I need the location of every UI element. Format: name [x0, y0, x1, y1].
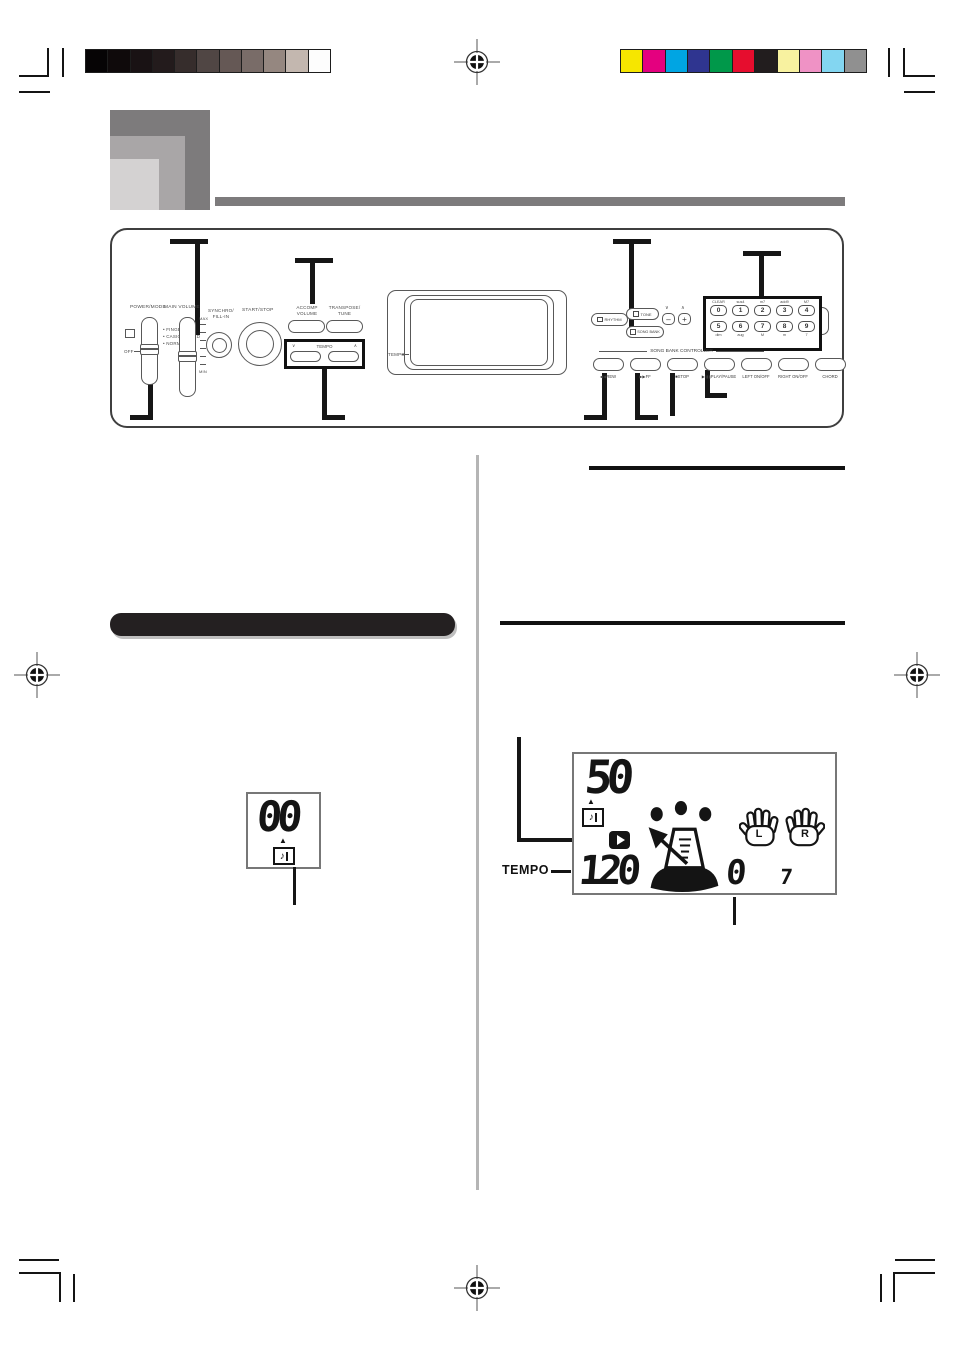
color-swatch: [710, 50, 731, 72]
key-0: 0: [710, 305, 727, 316]
callout-tempo: [322, 369, 327, 420]
gray-swatch: [131, 50, 152, 72]
left-hand-letter: L: [756, 828, 763, 840]
color-swatch: [800, 50, 821, 72]
crop-mark-tl: [19, 75, 49, 77]
crop-mark-bl: [59, 1272, 61, 1302]
tempo-up-button: [328, 351, 359, 362]
key-digit: 4: [805, 307, 809, 314]
power-mode-knob: [140, 344, 159, 355]
transpose-label-line2: TUNE: [326, 311, 363, 317]
song-bank-label: SONG BANK: [637, 330, 660, 334]
callout-rew: [584, 415, 607, 420]
small-display-number: 00: [255, 798, 299, 835]
cursor-triangle-icon: ▲: [279, 837, 287, 845]
small-display-figure: 00 ▲ ♪: [246, 792, 321, 869]
song-bank-note-icon: ♪: [273, 847, 295, 865]
rhythm-label: RHYTHM: [604, 317, 621, 322]
gray-swatch: [86, 50, 107, 72]
main-figure-callout-play: [517, 737, 521, 842]
ff-button: [630, 358, 661, 371]
accomp-volume-label: ACCOMP VOLUME: [289, 305, 325, 316]
keypad-side-bracket: [822, 307, 829, 335]
key-8: 8: [776, 321, 793, 332]
transpose-tune-label: TRANSPOSE/ TUNE: [326, 305, 363, 316]
key-digit: 1: [739, 307, 743, 314]
right-hand-icon: R: [785, 805, 825, 849]
registration-mark-icon: [894, 652, 940, 698]
main-display-figure: 50 ▲ ♪ 120: [572, 752, 837, 895]
color-swatch: [778, 50, 799, 72]
key-6: 6: [732, 321, 749, 332]
crop-mark-tr: [903, 48, 905, 77]
rhythm-button: RHYTHM: [591, 313, 628, 326]
transport-right-onoff: RIGHT ON/OFF: [776, 358, 810, 379]
transport-left-onoff: LEFT ON/OFF: [739, 358, 773, 379]
callout-keypad: [759, 251, 764, 297]
color-swatch: [643, 50, 664, 72]
key-9: 9: [798, 321, 815, 332]
key-5: 5: [710, 321, 727, 332]
key-4: 4: [798, 305, 815, 316]
keypad-label: M: [754, 333, 771, 337]
key-digit: 8: [783, 323, 787, 330]
registration-mark-icon: [14, 652, 60, 698]
keypad-label: 7: [798, 333, 815, 337]
color-swatch: [688, 50, 709, 72]
synchro-label-line1: SYNCHRO/: [208, 308, 234, 314]
keypad-label: dim: [710, 333, 727, 337]
synchro-fill-in-label: SYNCHRO/ FILL-IN: [208, 308, 234, 319]
tempo-label: TEMPO: [316, 344, 332, 349]
metronome-icon: [646, 801, 724, 894]
key-7: 7: [754, 321, 771, 332]
tempo-label-dash: [551, 870, 571, 873]
crop-mark-tr: [904, 91, 935, 93]
grayscale-calibration-bar: [85, 49, 331, 73]
crop-mark-tl: [47, 48, 49, 77]
minus-label: –: [666, 315, 670, 324]
crop-mark-bl: [73, 1274, 75, 1302]
title-rule-left: [599, 351, 647, 352]
manual-page: POWER/MODE • FINGERED • CASIO CHORD • NO…: [0, 0, 954, 1350]
cursor-triangle-icon: ▲: [587, 798, 595, 806]
color-swatch: [755, 50, 776, 72]
main-volume-label: MAIN VOLUME: [164, 305, 200, 311]
tempo-value-digits: 120: [577, 853, 637, 889]
volume-max-label: MAX: [199, 317, 208, 322]
play-pause-icon: ▶/▮▮: [702, 374, 711, 379]
keypad-label: m7: [754, 300, 771, 304]
key-digit: 3: [783, 307, 787, 314]
lcd-tempo-tick: [402, 354, 409, 355]
color-swatch: [666, 50, 687, 72]
stop-button: [667, 358, 698, 371]
keypad-labels-top: CLEAR sus4 m7 add9 M7: [710, 300, 815, 304]
rhythm-icon: [597, 317, 603, 323]
crop-mark-br: [895, 1259, 935, 1261]
left-onoff-button: [741, 358, 772, 371]
measure-digit: 0: [725, 858, 745, 889]
tone-button: TONE: [626, 308, 659, 320]
minus-button: –: [662, 313, 675, 325]
crop-mark-tr: [905, 75, 935, 77]
plus-button: +: [678, 313, 691, 325]
transpose-tune-button: [326, 320, 363, 333]
column-divider: [476, 455, 479, 1190]
song-bank-button: SONG BANK: [626, 326, 664, 338]
registration-mark-icon: [454, 1265, 500, 1311]
crop-mark-br: [893, 1272, 895, 1302]
value-up-glyph: ∧: [681, 305, 685, 311]
rew-button: [593, 358, 624, 371]
keypad-labels-bottom: dim aug M m 7: [710, 333, 815, 337]
beat-digit: 7: [779, 868, 793, 887]
transport-stop: ■STOP: [665, 358, 699, 379]
key-digit: 9: [805, 323, 809, 330]
callout-accomp-volume: [310, 258, 315, 304]
volume-min-label: MIN: [199, 370, 207, 375]
keypad-label: aug: [732, 333, 749, 337]
transport-row: ◀◀REW ▶▶FF ■STOP ▶/▮▮PLAY/PAUSE LEFT ON/…: [591, 358, 847, 379]
callout-play-pause: [705, 393, 727, 398]
controller-title-text: SONG BANK CONTROLLER: [647, 349, 716, 354]
color-swatch: [845, 50, 866, 72]
crop-mark-tl: [19, 91, 50, 93]
song-bank-note-icon: ♪: [582, 808, 604, 827]
keypad-label: M7: [798, 300, 815, 304]
lcd-screen: [410, 299, 548, 366]
play-pause-label: PLAY/PAUSE: [711, 374, 736, 379]
play-pause-button: [704, 358, 735, 371]
transport-ff: ▶▶FF: [628, 358, 662, 379]
tempo-up-glyph: ∧: [354, 343, 357, 349]
transport-chord: CHORD: [813, 358, 847, 379]
tempo-highlight-box: ∨ TEMPO ∧: [284, 339, 365, 369]
accomp-label-line2: VOLUME: [289, 311, 325, 317]
gray-swatch: [175, 50, 196, 72]
color-swatch: [621, 50, 642, 72]
callout-main-volume: [170, 239, 208, 244]
left-hand-icon: L: [739, 805, 779, 849]
synchro-fill-in-button-inner: [212, 338, 227, 353]
gray-swatch: [108, 50, 129, 72]
power-mode-label: POWER/MODE: [130, 305, 166, 311]
power-off-tick: [134, 351, 140, 352]
gray-swatch: [242, 50, 263, 72]
gray-swatch: [220, 50, 241, 72]
key-digit: 2: [761, 307, 765, 314]
keypad-row-top: 0 1 2 3 4: [710, 305, 815, 316]
power-indicator-icon: [125, 329, 135, 338]
synchro-label-line2: FILL-IN: [208, 314, 234, 320]
registration-mark-icon: [454, 39, 500, 85]
main-volume-knob: [178, 351, 197, 362]
callout-tempo: [322, 415, 345, 420]
tone-icon: [633, 311, 639, 317]
keypad-label: m: [776, 333, 793, 337]
song-bank-icon: [630, 329, 636, 335]
tone-label: TONE: [640, 312, 651, 317]
power-off-label: OFF: [124, 349, 134, 354]
main-volume-slider: [179, 317, 196, 397]
title-rule-right: [716, 351, 764, 352]
key-3: 3: [776, 305, 793, 316]
main-figure-callout-measure: [733, 897, 736, 925]
chord-button: [815, 358, 846, 371]
start-stop-label: START/STOP: [242, 308, 274, 314]
plus-label: +: [682, 315, 687, 324]
start-stop-button-inner: [246, 330, 274, 358]
rew-label: REW: [606, 374, 616, 379]
callout-stop: [670, 373, 675, 416]
gray-swatch: [286, 50, 307, 72]
number-keypad: CLEAR sus4 m7 add9 M7 0 1 2 3 4 5 6 7 8 …: [703, 296, 822, 351]
console-diagram: POWER/MODE • FINGERED • CASIO CHORD • NO…: [110, 228, 844, 428]
play-indicator-icon: [609, 831, 630, 849]
transpose-label-line1: TRANSPOSE/: [326, 305, 363, 311]
chord-label: CHORD: [822, 374, 837, 379]
power-mode-slider: [141, 317, 158, 385]
controller-title: SONG BANK CONTROLLER: [599, 349, 764, 354]
song-number-digits: 50: [583, 757, 630, 797]
value-down-glyph: ∨: [665, 305, 669, 311]
tempo-down-glyph: ∨: [292, 343, 295, 349]
left-onoff-label: LEFT ON/OFF: [742, 374, 769, 379]
keypad-label: CLEAR: [710, 300, 727, 304]
right-hand-letter: R: [801, 828, 809, 840]
right-onoff-label: RIGHT ON/OFF: [778, 374, 808, 379]
chapter-title-rule: [215, 197, 845, 206]
right-onoff-button: [778, 358, 809, 371]
accomp-volume-button: [288, 320, 325, 333]
transport-rew: ◀◀REW: [591, 358, 625, 379]
callout-ff: [635, 415, 658, 420]
key-digit: 0: [717, 307, 721, 314]
chapter-square-light: [110, 159, 159, 210]
crop-mark-br: [880, 1274, 882, 1302]
keypad-row-bottom: 5 6 7 8 9: [710, 321, 815, 332]
crop-mark-br: [893, 1272, 935, 1274]
right-column-rule-2: [500, 621, 845, 625]
key-2: 2: [754, 305, 771, 316]
color-calibration-bar: [620, 49, 867, 73]
gray-swatch: [197, 50, 218, 72]
crop-mark-tl: [62, 48, 64, 77]
crop-mark-bl: [19, 1272, 61, 1274]
ff-label: FF: [646, 374, 651, 379]
callout-power-mode: [130, 415, 153, 420]
color-swatch: [733, 50, 754, 72]
gray-swatch: [153, 50, 174, 72]
key-digit: 7: [761, 323, 765, 330]
main-figure-tempo-label: TEMPO: [502, 863, 549, 877]
color-swatch: [822, 50, 843, 72]
keypad-label: sus4: [732, 300, 749, 304]
callout-rew: [602, 373, 607, 420]
keypad-label: add9: [776, 300, 793, 304]
key-digit: 6: [739, 323, 743, 330]
small-figure-callout: [293, 867, 296, 905]
crop-mark-bl: [19, 1259, 59, 1261]
tempo-down-button: [290, 351, 321, 362]
key-digit: 5: [717, 323, 721, 330]
transport-play-pause: ▶/▮▮PLAY/PAUSE: [702, 358, 736, 379]
section-title-bar: [110, 613, 455, 636]
key-1: 1: [732, 305, 749, 316]
right-column-rule-1: [589, 466, 845, 470]
stop-label: STOP: [678, 374, 689, 379]
callout-ff: [635, 373, 640, 420]
gray-swatch: [264, 50, 285, 72]
gray-swatch: [309, 50, 330, 72]
crop-mark-tr: [888, 48, 890, 77]
